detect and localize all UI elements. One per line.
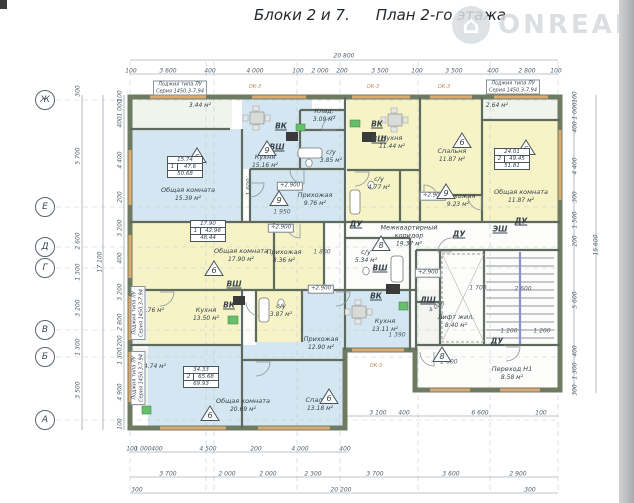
dim-label-53: 1 300 (116, 347, 123, 364)
dim-label-36: 5 700 (74, 147, 81, 164)
dim-label-3: 400 (204, 67, 215, 74)
dim-label-57: 1 000 (571, 102, 578, 119)
shaft-label-ду-8: ДУ (350, 220, 362, 229)
dim-label-61: 1 500 (571, 211, 578, 228)
area-table-2: 17.90142.9648.44 (190, 220, 226, 242)
dim-label-10: 3 500 (445, 67, 462, 74)
shaft-label-вш-3: ВШ (372, 135, 387, 144)
dim-label-51: 2 800 (116, 313, 123, 330)
shaft-label-лш-12: ЛШ (420, 296, 436, 305)
level-mark-3: +2.900 (308, 285, 334, 294)
axis-bubble-Ж: Ж (35, 90, 55, 110)
dim-label-13: 100 (550, 67, 561, 74)
room-label-bath1: с/у3.85 м² (320, 149, 342, 165)
dim-label-28: 2 300 (304, 470, 321, 477)
window-tag-1: ОК-3 (367, 84, 379, 90)
dim-label-17: 4 500 (199, 445, 216, 452)
axis-bubble-А: А (35, 410, 55, 430)
svg-text:6: 6 (326, 394, 331, 403)
dim-label-56: 100 (571, 91, 578, 102)
axis-bubble-Д: Д (35, 237, 55, 257)
shaft-label-эш-10: ЭШ (493, 225, 508, 234)
room-label-storage1: Клад.3.09 м² (313, 108, 335, 124)
axis-bubble-Е: Е (35, 197, 55, 217)
dim-label-31: 2 900 (509, 470, 526, 477)
shaft-label-вк-2: ВК (371, 120, 383, 129)
svg-text:6: 6 (459, 138, 464, 147)
shaft-box (386, 284, 400, 294)
axis-bubble-В: В (35, 320, 55, 340)
bathtub-icon (259, 298, 269, 322)
shaft-label-ду-11: ДУ (453, 230, 465, 239)
dim-label-47: 200 (116, 191, 123, 202)
table-icon (388, 114, 402, 126)
balcony-note-0: Лоджия типа ЛУСерия 1450.3-7.94 (153, 81, 207, 96)
dim-label-75: 1 200 (533, 327, 550, 334)
bathtub-icon (350, 190, 360, 214)
dim-label-62: 200 (571, 235, 578, 246)
dim-label-69: 1 950 (273, 208, 290, 215)
svg-text:6: 6 (207, 411, 212, 420)
dim-label-59: 4 400 (571, 157, 578, 174)
dim-label-42: 17 100 (96, 252, 103, 273)
dim-label-55: 100 (116, 418, 123, 429)
window-tag-0: ОК-3 (249, 84, 261, 90)
dim-label-22: 400 (398, 409, 409, 416)
dim-label-70: 1 800 (313, 248, 330, 255)
svg-text:9: 9 (276, 196, 281, 205)
dim-label-66: 300 (571, 384, 578, 395)
room-label-hall1: Прихожая9.76 м² (298, 192, 333, 208)
svg-text:8: 8 (439, 352, 444, 361)
dim-label-30: 3 600 (442, 470, 459, 477)
stove-icon (296, 124, 305, 131)
shaft-label-вш-4: ВШ (227, 280, 242, 289)
toilet-icon (363, 267, 369, 275)
dim-label-15: 1 000 (134, 445, 151, 452)
dim-label-67: 15 600 (592, 235, 599, 256)
door-arc (506, 347, 520, 361)
svg-text:8: 8 (378, 241, 383, 250)
dim-label-77: 1 390 (388, 331, 405, 338)
toilet-icon (306, 159, 312, 167)
balcony-note-1: Лоджия типа ЛУСерия 1450.3-7.94 (486, 80, 540, 95)
stove-icon (350, 120, 360, 127)
dim-label-19: 4 000 (291, 445, 308, 452)
dim-label-9: 100 (411, 67, 422, 74)
room-label-kitchen3: Кухня13.50 м² (193, 307, 219, 323)
axis-bubble-Б: Б (35, 347, 55, 367)
dim-label-54: 4 900 (116, 383, 123, 400)
room-label-common1: Общая комната15.39 м² (161, 187, 215, 203)
dim-label-2: 3 600 (159, 67, 176, 74)
shaft-label-ду-9: ДУ (515, 217, 527, 226)
scan-edge-strip (619, 0, 634, 503)
room-label-perehod: Переход Н18.58 м² (492, 366, 532, 382)
svg-text:6: 6 (211, 266, 216, 275)
dim-label-63: 5 600 (571, 291, 578, 308)
dim-label-46: 4 400 (116, 151, 123, 168)
axis-bubble-Г: Г (35, 258, 55, 278)
dim-label-24: 100 (535, 409, 546, 416)
dim-label-1: 100 (125, 67, 136, 74)
room-label-common2: Общая комната11.87 м² (494, 189, 548, 205)
room-label-bath2: с/у4.77 м² (368, 176, 390, 192)
svg-text:9: 9 (264, 146, 269, 155)
table-icon (250, 112, 264, 124)
dim-label-37: 2 600 (74, 232, 81, 249)
door-arc (246, 302, 260, 316)
shaft-label-вк-7: ВК (370, 292, 382, 301)
area-table-3: 34.33265.6869.93 (183, 366, 219, 388)
dim-label-8: 3 500 (371, 67, 388, 74)
stove-icon (399, 302, 408, 310)
dim-label-33: 20 200 (331, 486, 352, 493)
bathtub-icon (298, 148, 322, 158)
floor-plan: 3.44 м²Общая комната15.39 м²Кухня15.16 м… (0, 0, 634, 503)
dim-label-38: 1 300 (74, 263, 81, 280)
dim-label-23: 6 600 (471, 409, 488, 416)
dim-label-6: 2 000 (311, 67, 328, 74)
dim-label-29: 3 700 (366, 470, 383, 477)
dim-label-40: 1 300 (74, 338, 81, 355)
dim-label-25: 3 700 (159, 470, 176, 477)
area-table-1: 24.01249.4551.81 (494, 148, 530, 170)
dim-label-34: 300 (524, 486, 535, 493)
stove-icon (142, 406, 151, 414)
dim-label-41: 3 500 (74, 381, 81, 398)
shaft-label-вк-0: ВК (275, 122, 287, 131)
door-arc (336, 292, 350, 306)
dim-label-12: 2 800 (518, 67, 535, 74)
dim-label-68: 1 600 (245, 178, 252, 195)
room-label-loggia4: 4.74 м² (144, 363, 166, 371)
dim-label-21: 3 100 (369, 409, 386, 416)
dim-label-35: 300 (74, 85, 81, 96)
dim-label-72: 1 700 (469, 284, 486, 291)
dim-label-58: 400 (571, 121, 578, 132)
dim-label-74: 1 200 (500, 327, 517, 334)
dim-label-16: 400 (151, 445, 162, 452)
shaft-box (286, 132, 298, 141)
dim-label-49: 400 (116, 252, 123, 263)
window-tag-2: ОК-3 (438, 84, 450, 90)
dim-label-64: 400 (571, 345, 578, 356)
level-mark-0: +2.900 (277, 182, 303, 191)
dim-label-20: 400 (339, 445, 350, 452)
room-label-hall3: Прихожая8.36 м² (267, 249, 302, 265)
shaft-label-вк-5: ВК (223, 301, 235, 310)
bathtub-icon (391, 256, 403, 282)
room-label-loggia2: 2.64 м² (486, 102, 508, 110)
level-mark-1: +2.900 (268, 224, 294, 233)
door-arc (256, 362, 270, 376)
shaft-label-ду-13: ДУ (491, 337, 503, 346)
dim-label-52: 200 (116, 335, 123, 346)
dim-label-65: 1 300 (571, 362, 578, 379)
dim-label-26: 2 000 (218, 470, 235, 477)
dim-label-7: 200 (336, 67, 347, 74)
dim-label-45: 400 (116, 116, 123, 127)
dim-label-18: 200 (250, 445, 261, 452)
balcony-note-3: Лоджия типа ЛУСерия 1450.3-7.94 (131, 351, 146, 405)
stove-icon (228, 316, 238, 324)
dim-label-60: 300 (571, 191, 578, 202)
door-arc (160, 292, 174, 306)
dim-label-48: 3 200 (116, 219, 123, 236)
dim-label-4: 4 000 (246, 67, 263, 74)
dim-label-39: 3 200 (74, 299, 81, 316)
dim-label-50: 3 200 (116, 283, 123, 300)
dim-label-44: 1 000 (116, 99, 123, 116)
svg-text:9: 9 (443, 189, 448, 198)
balcony-note-2: Лоджия типа ЛУСерия 1450.3-7.94 (131, 286, 146, 340)
dim-label-5: 100 (292, 67, 303, 74)
area-table-0: 15.74147.650.68 (167, 156, 203, 178)
room-label-bath3: с/у3.87 м² (270, 303, 292, 319)
dim-label-11: 400 (487, 67, 498, 74)
table-icon (352, 306, 366, 318)
door-arc (355, 172, 369, 186)
dim-label-73: 2 600 (514, 285, 531, 292)
dim-label-32: 300 (131, 486, 142, 493)
dim-label-27: 2 000 (259, 470, 276, 477)
room-label-lift: Лифт жил.8.40 м² (438, 314, 475, 330)
room-label-hall4: Прихожая12.90 м² (304, 336, 339, 352)
window-tag-3: ОК-3 (370, 363, 382, 369)
room-label-common4: Общая комната20.69 м² (216, 398, 270, 414)
shaft-label-вш-6: ВШ (373, 264, 388, 273)
level-mark-4: +2.900 (415, 269, 441, 278)
room-label-bedroom2: Спальня11.87 м² (438, 148, 467, 164)
room-label-loggia1: 3.44 м² (189, 102, 211, 110)
screenshot-page: Блоки 2 и 7. План 2-го этажа ⌂ ONREALT 3… (0, 0, 634, 503)
dim-label-0: 20 800 (334, 52, 355, 59)
